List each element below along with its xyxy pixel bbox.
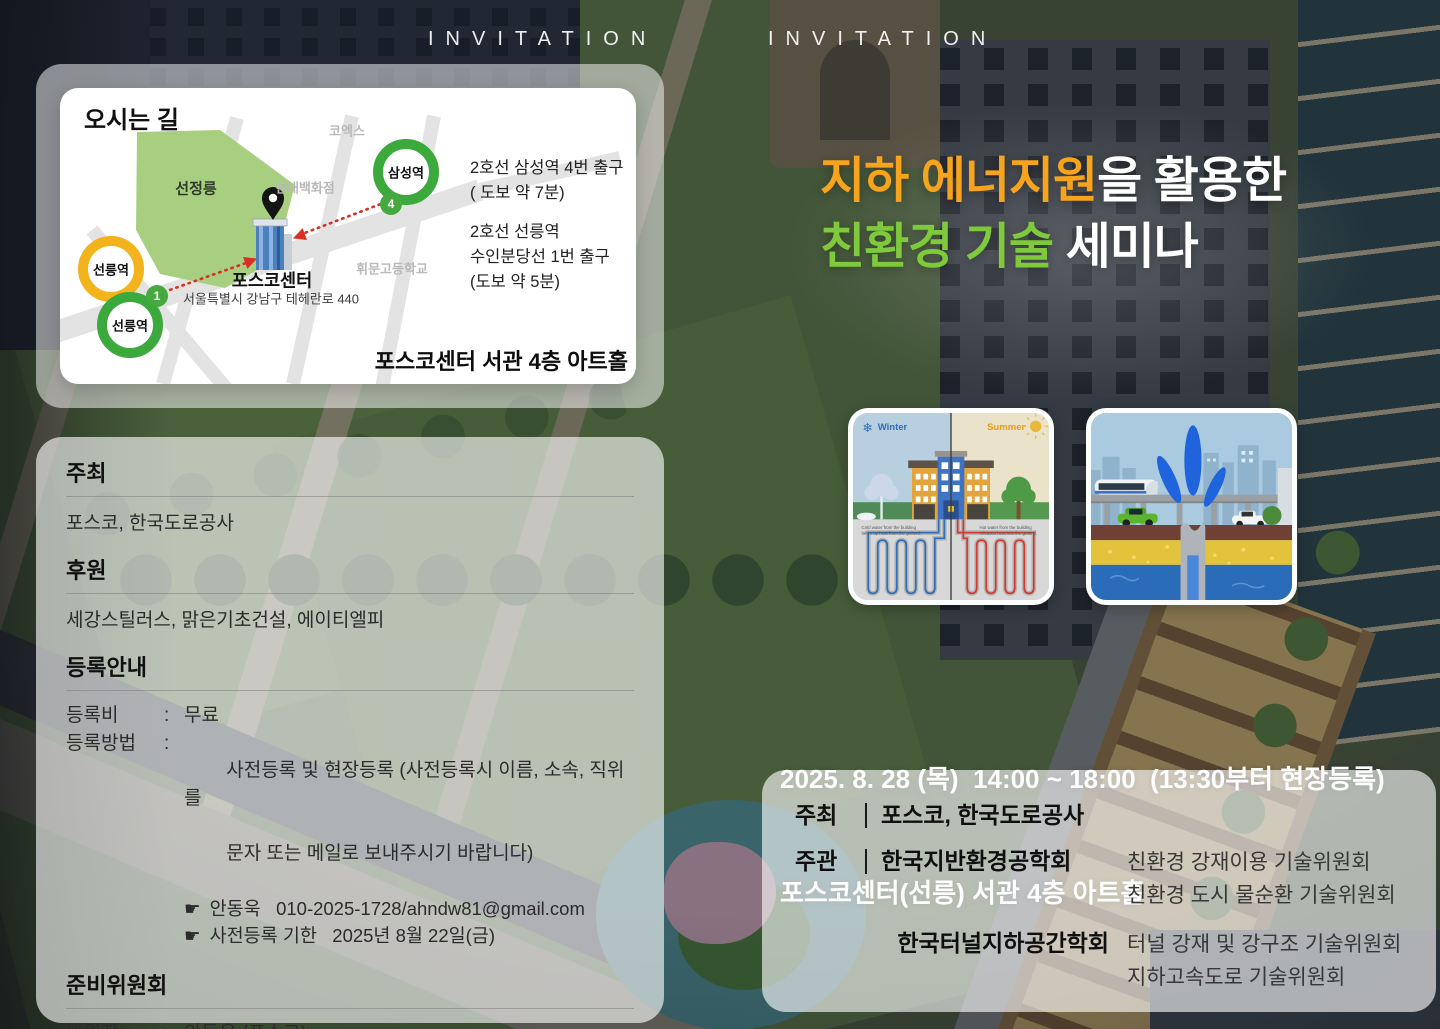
pipe-divider bbox=[865, 849, 867, 874]
committee-line: 친환경 도시 물순환 기술위원회 bbox=[1127, 879, 1412, 912]
groundwater-city-illustration bbox=[1086, 408, 1297, 605]
society-1-committees: 친환경 강재이용 기술위원회 친환경 도시 물순환 기술위원회 bbox=[1121, 846, 1412, 912]
fee-label: 등록비 bbox=[66, 702, 164, 730]
geothermal-seasons-illustration: ❄ Winter Summer Cold water from the buil… bbox=[848, 408, 1054, 605]
pointing-hand-icon: ☛ bbox=[184, 922, 201, 950]
committee-role: 위원장 bbox=[66, 1020, 164, 1029]
organizer-label: 주관 bbox=[795, 846, 851, 876]
pipe-divider bbox=[865, 803, 867, 828]
committee-row: 위원장 : 안동욱 (포스코) bbox=[66, 1020, 634, 1029]
divider bbox=[66, 1008, 634, 1009]
seasons-diagram: ❄ Winter Summer Cold water from the buil… bbox=[853, 413, 1049, 600]
method-line1: 사전등록 및 현장등록 (사전등록시 이름, 소속, 직위를 bbox=[184, 760, 624, 809]
winter-caption-line2: takes up heat from the ground. bbox=[862, 531, 921, 536]
directions-map-card: 코엑스 현대백화점 휘문고등학교 선정릉 선릉역 선릉역 삼성역 1 4 포스코… bbox=[60, 88, 636, 384]
host-heading: 주최 bbox=[66, 461, 634, 487]
station-label-seolleung-yellow: 선릉역 bbox=[93, 260, 129, 279]
direction-seolleung: 2호선 선릉역 수인분당선 1번 출구 (도보 약 5분) bbox=[470, 220, 630, 295]
divider bbox=[66, 690, 634, 691]
poi-label-coex: 코엑스 bbox=[329, 121, 365, 140]
direction-line: 2호선 선릉역 bbox=[470, 220, 630, 245]
summer-caption-line1: Hot water from the building bbox=[980, 525, 1033, 530]
well-shaft bbox=[1181, 523, 1206, 600]
seminar-title: 지하 에너지원을 활용한 친환경 기술 세미나 bbox=[820, 148, 1286, 280]
poi-label-whimoon: 휘문고등학교 bbox=[356, 259, 428, 278]
method-line2: 문자 또는 메일로 보내주시기 바랍니다) bbox=[226, 843, 533, 864]
title-rest: 을 활용한 bbox=[1097, 154, 1286, 208]
fee-value: 무료 bbox=[184, 702, 634, 730]
colon: : bbox=[164, 730, 184, 895]
title-highlight-green: 친환경 기술 bbox=[820, 220, 1053, 274]
divider bbox=[66, 593, 634, 594]
summer-label: Summer bbox=[987, 422, 1025, 433]
exit1-number: 1 bbox=[154, 289, 161, 303]
direction-line: ( 도보 약 7분) bbox=[470, 181, 630, 206]
poi-label-hyundai: 현대백화점 bbox=[275, 178, 335, 197]
organizers-grid: 주최 포스코, 한국도로공사 주관 한국지반환경공학회 친환경 강재이용 기술위… bbox=[795, 800, 1412, 994]
winter-caption-line1: Cold water from the building bbox=[862, 525, 917, 530]
committee-line: 지하고속도로 기술위원회 bbox=[1127, 961, 1412, 994]
organizer-society-2: 한국터널지하공간학회 bbox=[881, 928, 1115, 958]
sponsor-heading: 후원 bbox=[66, 558, 634, 584]
organizer-society-1: 한국지반환경공학회 bbox=[881, 846, 1115, 876]
map-card-title: 오시는 길 bbox=[84, 100, 179, 135]
posco-center-building-icon bbox=[253, 219, 292, 270]
method-label: 등록방법 bbox=[66, 730, 164, 895]
title-rest: 세미나 bbox=[1053, 220, 1198, 274]
method-row: 등록방법 : 사전등록 및 현장등록 (사전등록시 이름, 소속, 직위를 문자… bbox=[66, 730, 634, 895]
direction-line: 수인분당선 1번 출구 bbox=[470, 245, 630, 270]
committee-heading: 준비위원회 bbox=[66, 973, 634, 999]
snowflake-icon: ❄ bbox=[863, 421, 873, 435]
colon: : bbox=[164, 702, 184, 730]
groundwater-diagram bbox=[1091, 413, 1292, 600]
committee-line: 터널 강재 및 강구조 기술위원회 bbox=[1127, 928, 1412, 961]
host-label: 주최 bbox=[795, 800, 851, 830]
fee-row: 등록비 : 무료 bbox=[66, 702, 634, 730]
train-icon bbox=[1095, 479, 1158, 494]
deadline-row: ☛ 사전등록 기한 2025년 8월 22일(금) bbox=[184, 922, 634, 950]
organizers-panel: 주최 포스코, 한국도로공사 주관 한국지반환경공학회 친환경 강재이용 기술위… bbox=[762, 770, 1436, 1012]
registration-heading: 등록안내 bbox=[66, 655, 634, 681]
direction-line: (도보 약 5분) bbox=[470, 270, 630, 295]
committee-names: 안동욱 (포스코) bbox=[184, 1020, 634, 1029]
committee-line: 친환경 강재이용 기술위원회 bbox=[1127, 846, 1412, 879]
station-label-samseong: 삼성역 bbox=[388, 163, 424, 182]
host-value: 포스코, 한국도로공사 bbox=[66, 508, 634, 535]
seminar-title-line2: 친환경 기술 세미나 bbox=[820, 214, 1286, 280]
exit4-number: 4 bbox=[388, 197, 395, 211]
contact-row: ☛ 안동욱 010-2025-1728/ahndw81@gmail.com bbox=[184, 895, 634, 923]
posco-center-address: 서울특별시 강남구 테헤란로 440 bbox=[183, 289, 359, 308]
station-label-seolleung-green: 선릉역 bbox=[112, 316, 148, 335]
contact-text: 안동욱 010-2025-1728/ahndw81@gmail.com bbox=[210, 895, 585, 923]
park-label: 선정릉 bbox=[175, 178, 216, 199]
event-info-panel: 주최 포스코, 한국도로공사 후원 세강스틸러스, 맑은기초건설, 에이티엘피 … bbox=[36, 437, 664, 1023]
venue-hall-line: 포스코센터 서관 4층 아트홀 bbox=[375, 344, 628, 376]
bush bbox=[1262, 506, 1281, 525]
invitation-poster: INVITATION INVITATION bbox=[0, 0, 1440, 1029]
seminar-title-line1: 지하 에너지원을 활용한 bbox=[820, 148, 1286, 214]
society-2-committees: 터널 강재 및 강구조 기술위원회 지하고속도로 기술위원회 bbox=[1121, 928, 1412, 994]
divider bbox=[66, 496, 634, 497]
sponsor-value: 세강스틸러스, 맑은기초건설, 에이티엘피 bbox=[66, 605, 634, 632]
invitation-text-left: INVITATION bbox=[428, 28, 657, 51]
transit-directions: 2호선 삼성역 4번 출구 ( 도보 약 7분) 2호선 선릉역 수인분당선 1… bbox=[470, 156, 630, 295]
method-value: 사전등록 및 현장등록 (사전등록시 이름, 소속, 직위를 문자 또는 메일로… bbox=[184, 730, 634, 895]
colon: : bbox=[164, 1020, 184, 1029]
pointing-hand-icon: ☛ bbox=[184, 895, 201, 923]
title-highlight-orange: 지하 에너지원 bbox=[820, 154, 1097, 208]
invitation-text-right: INVITATION bbox=[768, 28, 997, 51]
winter-label: Winter bbox=[878, 422, 908, 433]
summer-caption-line2: releases heat into the ground. bbox=[980, 531, 1038, 536]
host-organizations: 포스코, 한국도로공사 bbox=[881, 800, 1412, 830]
deadline-text: 사전등록 기한 2025년 8월 22일(금) bbox=[210, 922, 495, 950]
direction-samseong: 2호선 삼성역 4번 출구 ( 도보 약 7분) bbox=[470, 156, 630, 206]
direction-line: 2호선 삼성역 4번 출구 bbox=[470, 156, 630, 181]
